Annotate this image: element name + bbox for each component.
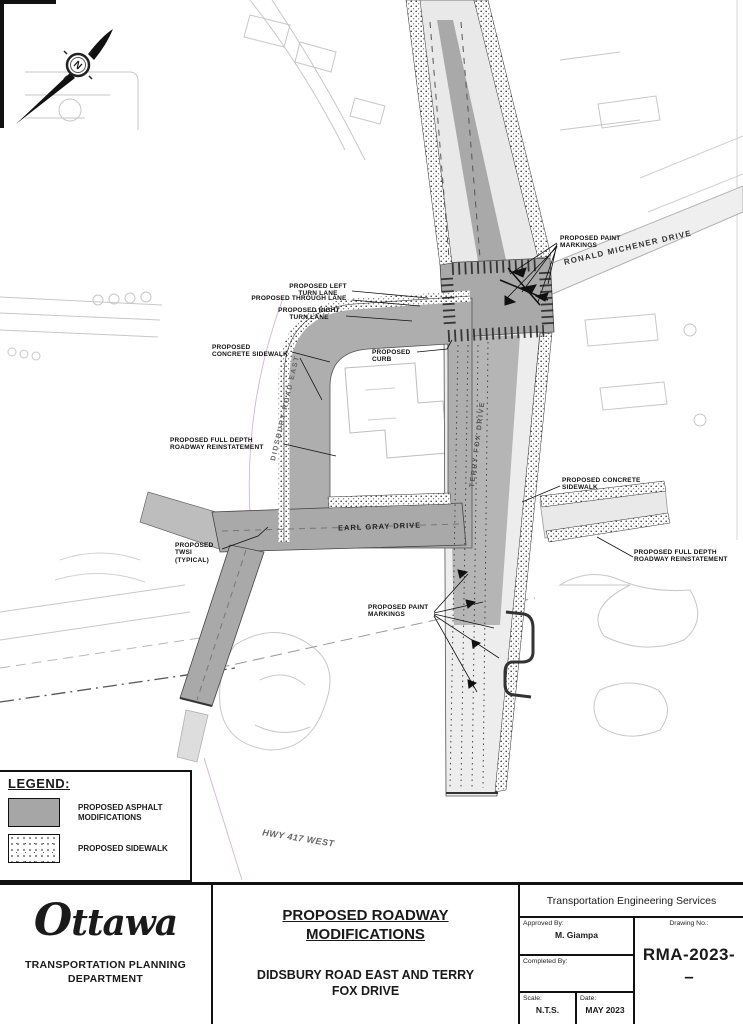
plan-linework: N bbox=[0, 0, 743, 882]
existing-linework bbox=[0, 0, 743, 750]
scale-label: Scale: bbox=[523, 995, 572, 1002]
callout-full-depth-west: PROPOSED FULL DEPTH ROADWAY REINSTATEMEN… bbox=[170, 437, 284, 452]
asphalt-didsbury-southwest bbox=[180, 545, 264, 706]
callout-twsi: PROPOSED TWSI (TYPICAL) bbox=[175, 542, 227, 564]
legend-label-asphalt: PROPOSED ASPHALT MODIFICATIONS bbox=[78, 803, 190, 823]
callout-concrete-sidewalk-west: PROPOSED CONCRETE SIDEWALK bbox=[212, 344, 290, 359]
callout-right-turn-lane: PROPOSED RIGHT TURN LANE bbox=[276, 307, 342, 322]
callout-paint-markings-north: PROPOSED PAINT MARKINGS bbox=[560, 235, 624, 250]
sidewalk-swatch bbox=[8, 834, 60, 863]
drawing-title: PROPOSED ROADWAY MODIFICATIONS bbox=[256, 907, 476, 945]
title-block-info-panel: Transportation Engineering Services Appr… bbox=[520, 885, 743, 1024]
drawing-number-value: RMA-2023- bbox=[639, 945, 739, 965]
legend-item-asphalt: PROPOSED ASPHALT MODIFICATIONS bbox=[8, 798, 190, 827]
legend: LEGEND: PROPOSED ASPHALT MODIFICATIONS P… bbox=[0, 770, 192, 882]
north-arrow-icon: N bbox=[16, 29, 113, 124]
scale-value: N.T.S. bbox=[523, 1005, 572, 1015]
engineering-drawing-sheet: N RONALD MICHENER DRIVE DIDSBURY ROAD EA… bbox=[0, 0, 743, 1024]
approved-by-label: Approved By: bbox=[523, 920, 630, 927]
date-cell: Date: MAY 2023 bbox=[577, 993, 633, 1024]
department-name: TRANSPORTATION PLANNING DEPARTMENT bbox=[0, 959, 211, 986]
approved-by-cell: Approved By: M. Giampa bbox=[520, 918, 633, 956]
drawing-subtitle: DIDSBURY ROAD EAST AND TERRY FOX DRIVE bbox=[251, 967, 481, 1000]
callout-full-depth-east: PROPOSED FULL DEPTH ROADWAY REINSTATEMEN… bbox=[634, 549, 742, 564]
asphalt-swatch bbox=[8, 798, 60, 827]
drawing-number-cell: Drawing No.: RMA-2023- – bbox=[635, 918, 743, 1024]
approved-by-value: M. Giampa bbox=[523, 930, 630, 940]
scale-date-row: Scale: N.T.S. Date: MAY 2023 bbox=[520, 993, 633, 1024]
scale-cell: Scale: N.T.S. bbox=[520, 993, 577, 1024]
callout-through-lane: PROPOSED THROUGH LANE bbox=[246, 295, 352, 302]
org-name: Transportation Engineering Services bbox=[520, 885, 743, 918]
callout-concrete-sidewalk-east: PROPOSED CONCRETE SIDEWALK bbox=[562, 477, 642, 492]
callout-paint-markings-south: PROPOSED PAINT MARKINGS bbox=[368, 604, 432, 619]
ottawa-logo: Ottawa bbox=[0, 899, 211, 943]
title-block-logo-panel: Ottawa TRANSPORTATION PLANNING DEPARTMEN… bbox=[0, 885, 213, 1024]
plan-drawing: N RONALD MICHENER DRIVE DIDSBURY ROAD EA… bbox=[0, 0, 743, 882]
date-value: MAY 2023 bbox=[580, 1005, 630, 1015]
title-block-title-panel: PROPOSED ROADWAY MODIFICATIONS DIDSBURY … bbox=[213, 885, 520, 1024]
date-label: Date: bbox=[580, 995, 630, 1002]
sheet-border-marks bbox=[0, 0, 56, 128]
completed-by-cell: Completed By: bbox=[520, 956, 633, 993]
drawing-number-suffix: – bbox=[639, 967, 739, 987]
legend-label-sidewalk: PROPOSED SIDEWALK bbox=[78, 844, 190, 854]
legend-title: LEGEND: bbox=[8, 776, 190, 791]
title-block: Ottawa TRANSPORTATION PLANNING DEPARTMEN… bbox=[0, 882, 743, 1024]
completed-by-label: Completed By: bbox=[523, 958, 630, 965]
drawing-number-label: Drawing No.: bbox=[639, 920, 739, 927]
callout-curb: PROPOSED CURB bbox=[372, 349, 422, 364]
ottawa-logo-initial: O bbox=[34, 895, 71, 946]
legend-item-sidewalk: PROPOSED SIDEWALK bbox=[8, 834, 190, 863]
road-didsbury-faint-continuation bbox=[177, 710, 208, 762]
